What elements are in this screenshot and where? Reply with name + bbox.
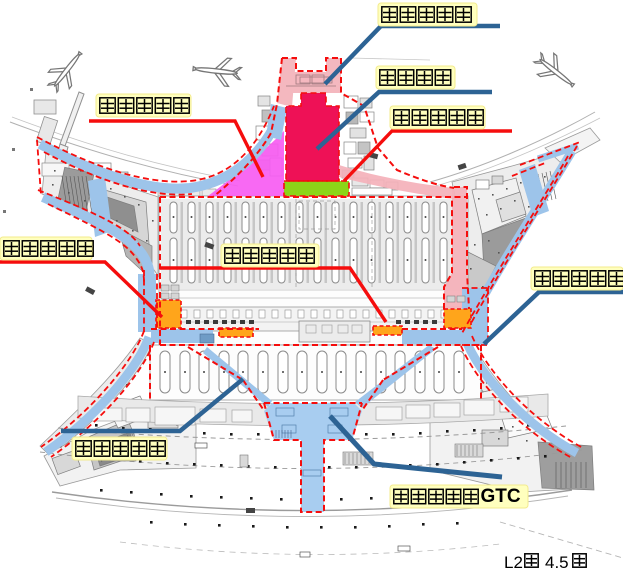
svg-text:4.5: 4.5 [545, 553, 569, 572]
svg-text:L2: L2 [504, 553, 523, 572]
svg-text:GTC: GTC [481, 486, 521, 507]
